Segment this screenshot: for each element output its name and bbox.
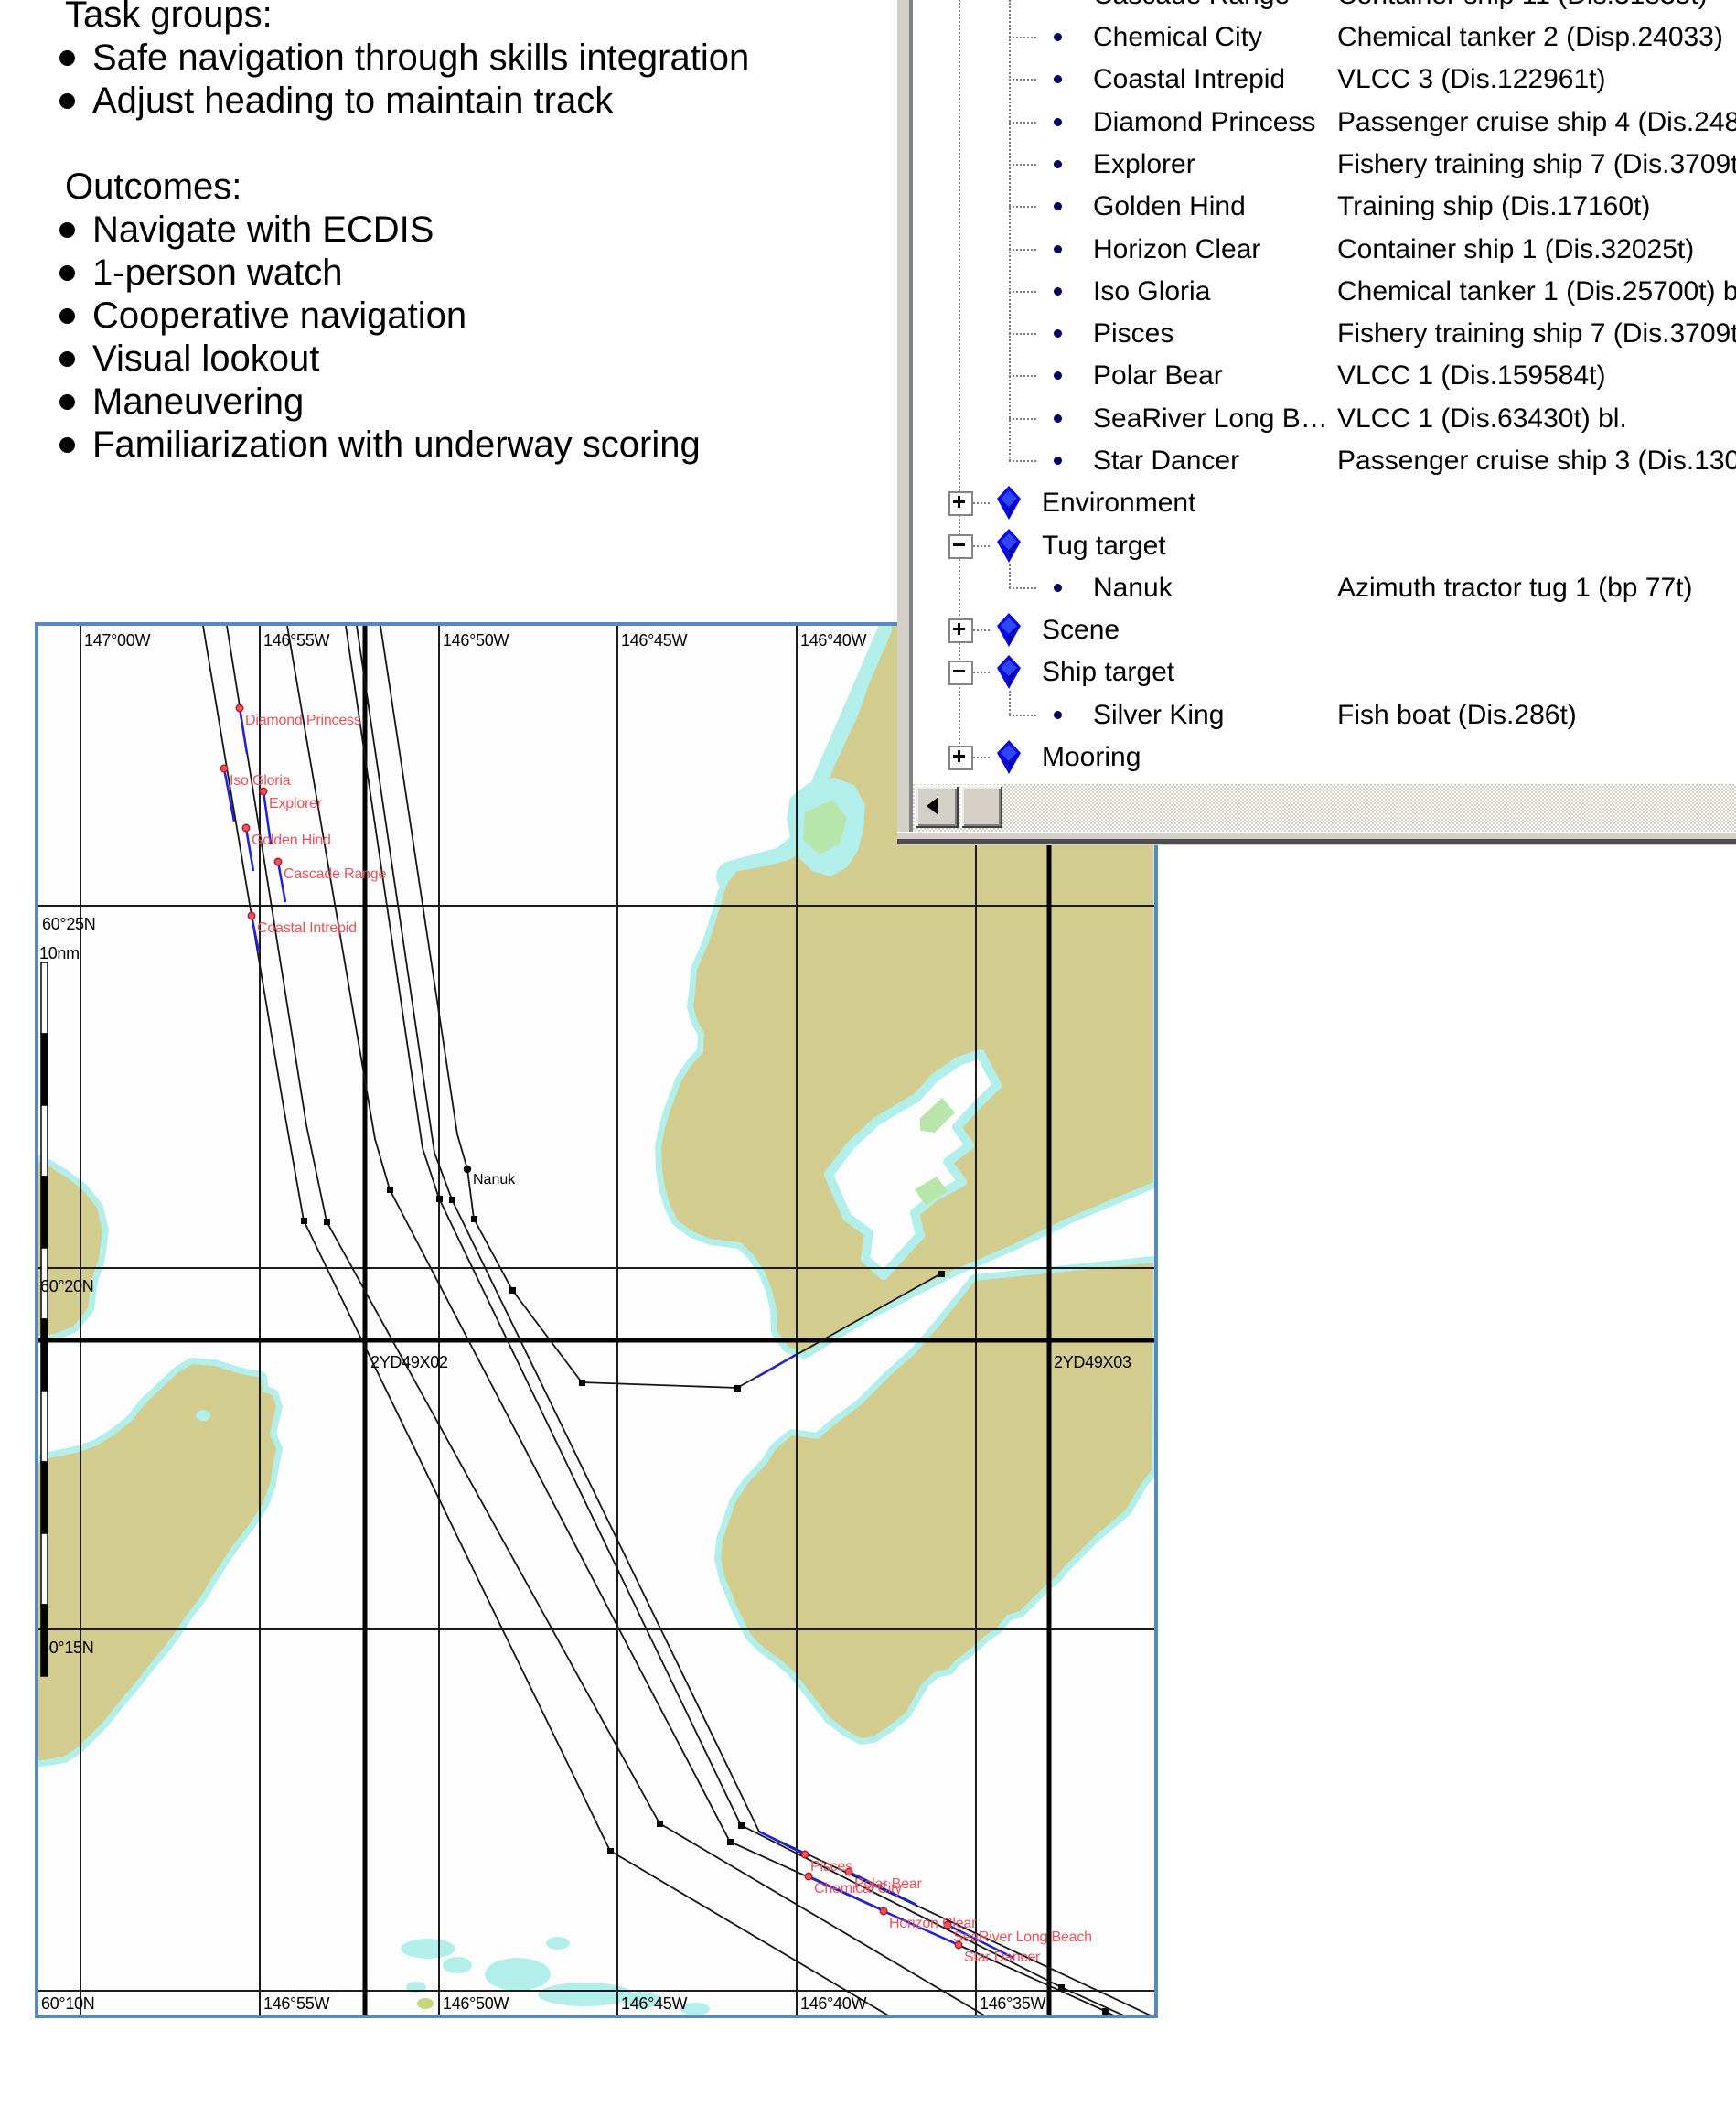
svg-text:Explorer: Explorer	[269, 796, 323, 811]
svg-text:60°25N: 60°25N	[42, 915, 95, 933]
svg-text:10nm: 10nm	[39, 944, 80, 962]
svg-text:146°50W: 146°50W	[443, 631, 509, 650]
svg-text:Golden Hind: Golden Hind	[252, 833, 331, 848]
svg-text:60°15N: 60°15N	[40, 1639, 93, 1657]
svg-text:SeaRiver Long Beach: SeaRiver Long Beach	[953, 1929, 1092, 1945]
svg-text:147°00W: 147°00W	[84, 631, 150, 650]
svg-text:Coastal Intrepid: Coastal Intrepid	[257, 920, 357, 936]
svg-text:2YD49X03: 2YD49X03	[1054, 1353, 1131, 1371]
svg-text:Cascade Range: Cascade Range	[284, 866, 386, 882]
svg-text:Star Dancer: Star Dancer	[964, 1950, 1041, 1965]
svg-text:146°35W: 146°35W	[980, 1994, 1045, 2013]
svg-text:146°45W: 146°45W	[621, 631, 687, 650]
svg-text:Polar Bear: Polar Bear	[854, 1876, 922, 1892]
svg-text:2YD49X02: 2YD49X02	[370, 1353, 448, 1371]
svg-text:Diamond Princess: Diamond Princess	[245, 713, 361, 728]
svg-text:Nanuk: Nanuk	[473, 1172, 516, 1187]
svg-text:60°20N: 60°20N	[40, 1277, 93, 1295]
svg-text:146°45W: 146°45W	[621, 1994, 687, 2013]
svg-text:146°55W: 146°55W	[263, 631, 329, 650]
svg-text:Iso Gloria: Iso Gloria	[230, 773, 291, 789]
svg-text:146°55W: 146°55W	[263, 1994, 329, 2013]
svg-text:146°40W: 146°40W	[800, 1994, 866, 2013]
svg-text:146°40W: 146°40W	[800, 631, 866, 650]
svg-text:146°50W: 146°50W	[443, 1994, 509, 2013]
svg-text:Pisces: Pisces	[810, 1859, 852, 1875]
svg-text:60°10N: 60°10N	[41, 1994, 94, 2013]
